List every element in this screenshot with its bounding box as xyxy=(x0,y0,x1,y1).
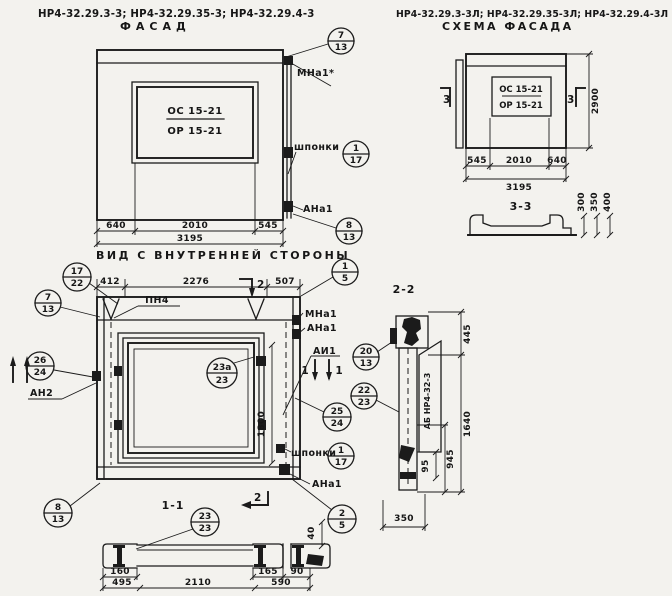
scheme-dim-3195: 3195 xyxy=(506,183,532,193)
balloon-den: 22 xyxy=(71,279,84,289)
scheme-drawing: ОС 15-21 ОР 15-21 3 3 2900 545 2010 640 … xyxy=(441,51,601,193)
facade-dim-640: 640 xyxy=(106,221,126,231)
inner-dim-1800: 1800 xyxy=(257,411,267,437)
balloon-den: 5 xyxy=(342,274,348,284)
scheme-window-mark: ОС 15-21 ОР 15-21 xyxy=(499,85,543,111)
dim-400: 400 xyxy=(603,192,613,212)
detail-balloon-8-13: 8 13 xyxy=(336,218,362,244)
balloon-num: 1 xyxy=(338,446,344,456)
label-mna1: МНа1* xyxy=(297,68,334,79)
scheme-dim-545: 545 xyxy=(467,156,487,166)
detail-balloon-26-24: 26 24 xyxy=(26,352,54,380)
cut-label: 1 xyxy=(335,365,342,377)
detail-balloon-1-17-inner: 1 17 xyxy=(328,443,354,469)
balloon-den: 17 xyxy=(350,156,363,166)
facade-drawing: ОС 15-21 ОР 15-21 640 2010 545 3195 7 13… xyxy=(94,28,369,247)
section-1-1: 1-1 23 23 40 160 165 90 xyxy=(100,499,330,591)
window-clip xyxy=(114,420,122,430)
facade-dim-2010: 2010 xyxy=(182,221,208,231)
cut-label: 1 xyxy=(301,365,308,377)
detail-balloon-7-13: 7 13 xyxy=(328,28,354,54)
cut-label: 2 xyxy=(254,492,261,504)
cut-label: 2 xyxy=(257,279,264,291)
cut-2-marker-bottom: 2 xyxy=(241,492,268,509)
dim-95: 95 xyxy=(421,459,431,472)
window-mark-top: ОС 15-21 xyxy=(167,106,222,117)
balloon-den: 24 xyxy=(34,368,47,378)
bolt-plate xyxy=(390,328,397,344)
detail-balloon-23-23: 23 23 xyxy=(191,508,219,536)
section-2-2: 2-2 АБ НР4-32-3 445 1640 945 95 350 xyxy=(351,283,473,531)
inner-view-title: ВИД С ВНУТРЕННЕЙ СТОРОНЫ xyxy=(96,249,350,262)
cut-2-marker-top: 2 xyxy=(240,279,264,298)
cut-3-marker-right: 3 xyxy=(567,88,585,106)
detail-balloon-7-13-left: 7 13 xyxy=(35,290,61,316)
section-3-3-dims: 300 350 400 xyxy=(577,192,613,238)
cut-label: 3 xyxy=(567,94,574,106)
balloon-num: 8 xyxy=(55,503,61,513)
balloon-den: 23 xyxy=(199,524,212,534)
detail-balloon-8-13-bottom: 8 13 xyxy=(44,499,72,527)
scheme-dim-640: 640 xyxy=(547,156,567,166)
section-3-3-title: 3-3 xyxy=(510,200,533,213)
header-right: НР4-32.29.3-3Л; НР4-32.29.35-3Л; НР4-32.… xyxy=(396,9,668,33)
cut-label: 3 xyxy=(443,94,450,106)
detail-balloon-1-5: 1 5 xyxy=(332,259,358,285)
balloon-num: 1 xyxy=(353,144,359,154)
dim-300: 300 xyxy=(577,192,587,212)
section-2-2-title: 2-2 xyxy=(393,283,416,296)
header-left: НР4-32.29.3-3; НР4-32.29.35-3; НР4-32.29… xyxy=(38,9,315,33)
scheme-view-title: СХЕМА ФАСАДА xyxy=(442,20,574,33)
scheme-dim-2010: 2010 xyxy=(506,156,532,166)
label-mna1: МНа1 xyxy=(305,309,337,320)
anchor-tab xyxy=(292,329,301,339)
detail-balloon-22-23: 22 23 xyxy=(351,383,377,409)
balloon-num: 26 xyxy=(34,356,47,366)
balloon-den: 24 xyxy=(331,419,344,429)
balloon-den: 13 xyxy=(42,305,55,315)
dim-495: 495 xyxy=(112,578,132,588)
balloon-den: 23 xyxy=(358,398,371,408)
window-mark-bottom: ОР 15-21 xyxy=(499,101,543,111)
anchor-hook xyxy=(306,554,324,566)
dim-1640: 1640 xyxy=(463,411,473,437)
bolt-detail xyxy=(402,317,421,346)
dim-160: 160 xyxy=(110,567,130,577)
facade-models-title: НР4-32.29.3-3; НР4-32.29.35-3; НР4-32.29… xyxy=(38,9,315,20)
dim-945: 945 xyxy=(446,449,456,469)
inner-dim-2276: 2276 xyxy=(183,277,209,287)
anchor-tab-bottom xyxy=(279,464,290,475)
window-mark-top: ОС 15-21 xyxy=(499,85,543,95)
detail-balloon-23a-23: 23а 23 xyxy=(207,358,237,388)
balloon-den: 17 xyxy=(335,458,348,468)
drawing-sheet: НР4-32.29.3-3; НР4-32.29.35-3; НР4-32.29… xyxy=(0,0,672,596)
scheme-dim-2900: 2900 xyxy=(591,88,601,114)
facade-window-mark: ОС 15-21 ОР 15-21 xyxy=(167,106,224,137)
dim-350: 350 xyxy=(394,514,414,524)
dim-90: 90 xyxy=(290,567,303,577)
balloon-den: 23 xyxy=(216,376,229,386)
label-ana1-top: АНа1 xyxy=(307,323,337,334)
balloon-den: 13 xyxy=(343,233,356,243)
label-shponki: шпонки xyxy=(294,142,339,153)
label-ai1: АИ1 xyxy=(313,346,336,357)
detail-balloon-25-24: 25 24 xyxy=(323,403,351,431)
balloon-num: 23а xyxy=(213,363,232,373)
window-clip xyxy=(114,366,122,376)
balloon-num: 22 xyxy=(358,386,371,396)
facade-dim-3195: 3195 xyxy=(177,234,203,244)
balloon-num: 2 xyxy=(339,509,345,519)
inner-dim-412: 412 xyxy=(100,277,120,287)
detail-balloon-17-22: 17 22 xyxy=(63,263,91,291)
dim-165: 165 xyxy=(258,567,278,577)
scheme-models-title: НР4-32.29.3-3Л; НР4-32.29.35-3Л; НР4-32.… xyxy=(396,9,668,20)
dim-350: 350 xyxy=(590,192,600,212)
cut-3-marker-left: 3 xyxy=(441,88,450,106)
label-pn4: ПН4 xyxy=(145,295,169,306)
inner-view-drawing: ВИД С ВНУТРЕННЕЙ СТОРОНЫ 412 2276 507 2 … xyxy=(10,249,358,533)
detail-balloon-1-17: 1 17 xyxy=(343,141,369,167)
label-an2: АН2 xyxy=(30,388,53,399)
inner-dim-507: 507 xyxy=(275,277,295,287)
balloon-num: 17 xyxy=(71,267,84,277)
balloon-num: 20 xyxy=(360,347,373,357)
anchor-clip-left xyxy=(92,371,101,381)
facade-view-title: ФАСАД xyxy=(120,20,191,33)
balloon-den: 13 xyxy=(335,43,348,53)
balloon-num: 7 xyxy=(338,31,344,41)
balloon-num: 25 xyxy=(331,407,344,417)
shponka-tab xyxy=(284,147,293,158)
dim-590: 590 xyxy=(271,578,291,588)
window-clip xyxy=(256,356,266,366)
label-ana1: АНа1 xyxy=(303,204,333,215)
dim-2110: 2110 xyxy=(185,578,211,588)
balloon-den: 13 xyxy=(360,359,373,369)
balloon-num: 8 xyxy=(346,221,352,231)
balloon-num: 1 xyxy=(342,262,348,272)
dim-445: 445 xyxy=(463,324,473,344)
balloon-den: 13 xyxy=(52,515,65,525)
balloon-num: 23 xyxy=(199,512,212,522)
anchor-detail xyxy=(399,445,415,462)
balloon-den: 5 xyxy=(339,521,345,531)
detail-balloon-2-5: 2 5 xyxy=(328,505,356,533)
panel-tag: АБ НР4-32-3 xyxy=(423,373,432,430)
label-ana1-bottom: АНа1 xyxy=(312,479,342,490)
window-mark-bottom: ОР 15-21 xyxy=(167,126,222,137)
dim-40: 40 xyxy=(307,526,317,539)
technical-drawing: НР4-32.29.3-3; НР4-32.29.35-3; НР4-32.29… xyxy=(0,0,672,596)
detail-balloon-20-13: 20 13 xyxy=(353,344,379,370)
section-1-1-title: 1-1 xyxy=(162,499,185,512)
balloon-num: 7 xyxy=(45,293,51,303)
anchor-detail xyxy=(400,472,416,479)
shponka-tab xyxy=(276,444,285,453)
facade-dim-545: 545 xyxy=(258,221,278,231)
anchor-tab-bottom xyxy=(284,201,293,212)
section-3-3: 3-3 300 350 400 xyxy=(468,192,613,238)
